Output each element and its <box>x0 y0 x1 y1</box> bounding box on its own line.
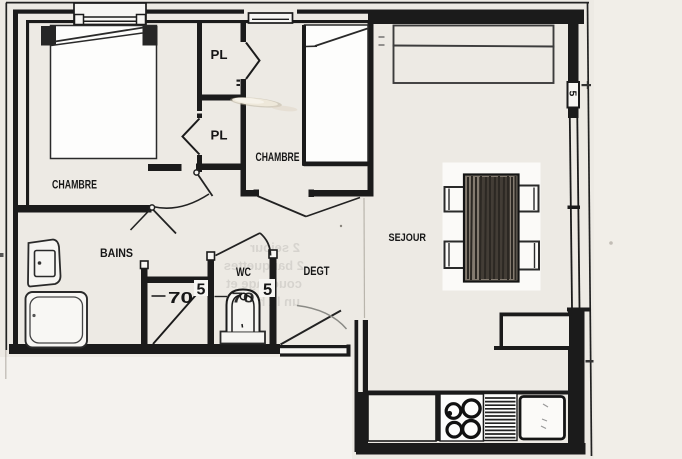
svg-text:5: 5 <box>197 282 206 299</box>
svg-text:CHAMBRE: CHAMBRE <box>52 178 97 192</box>
svg-text:70: 70 <box>232 290 255 307</box>
svg-text:70: 70 <box>168 290 193 307</box>
svg-text:WC: WC <box>236 267 251 279</box>
svg-text:BAINS: BAINS <box>100 246 133 260</box>
svg-text:DEGT: DEGT <box>304 266 330 278</box>
svg-text:PL: PL <box>211 48 228 62</box>
svg-text:PL: PL <box>211 129 228 143</box>
svg-text:5: 5 <box>567 91 579 97</box>
svg-text:CHAMBRE: CHAMBRE <box>256 150 300 164</box>
svg-text:5: 5 <box>263 281 272 299</box>
svg-text:SEJOUR: SEJOUR <box>389 232 427 244</box>
